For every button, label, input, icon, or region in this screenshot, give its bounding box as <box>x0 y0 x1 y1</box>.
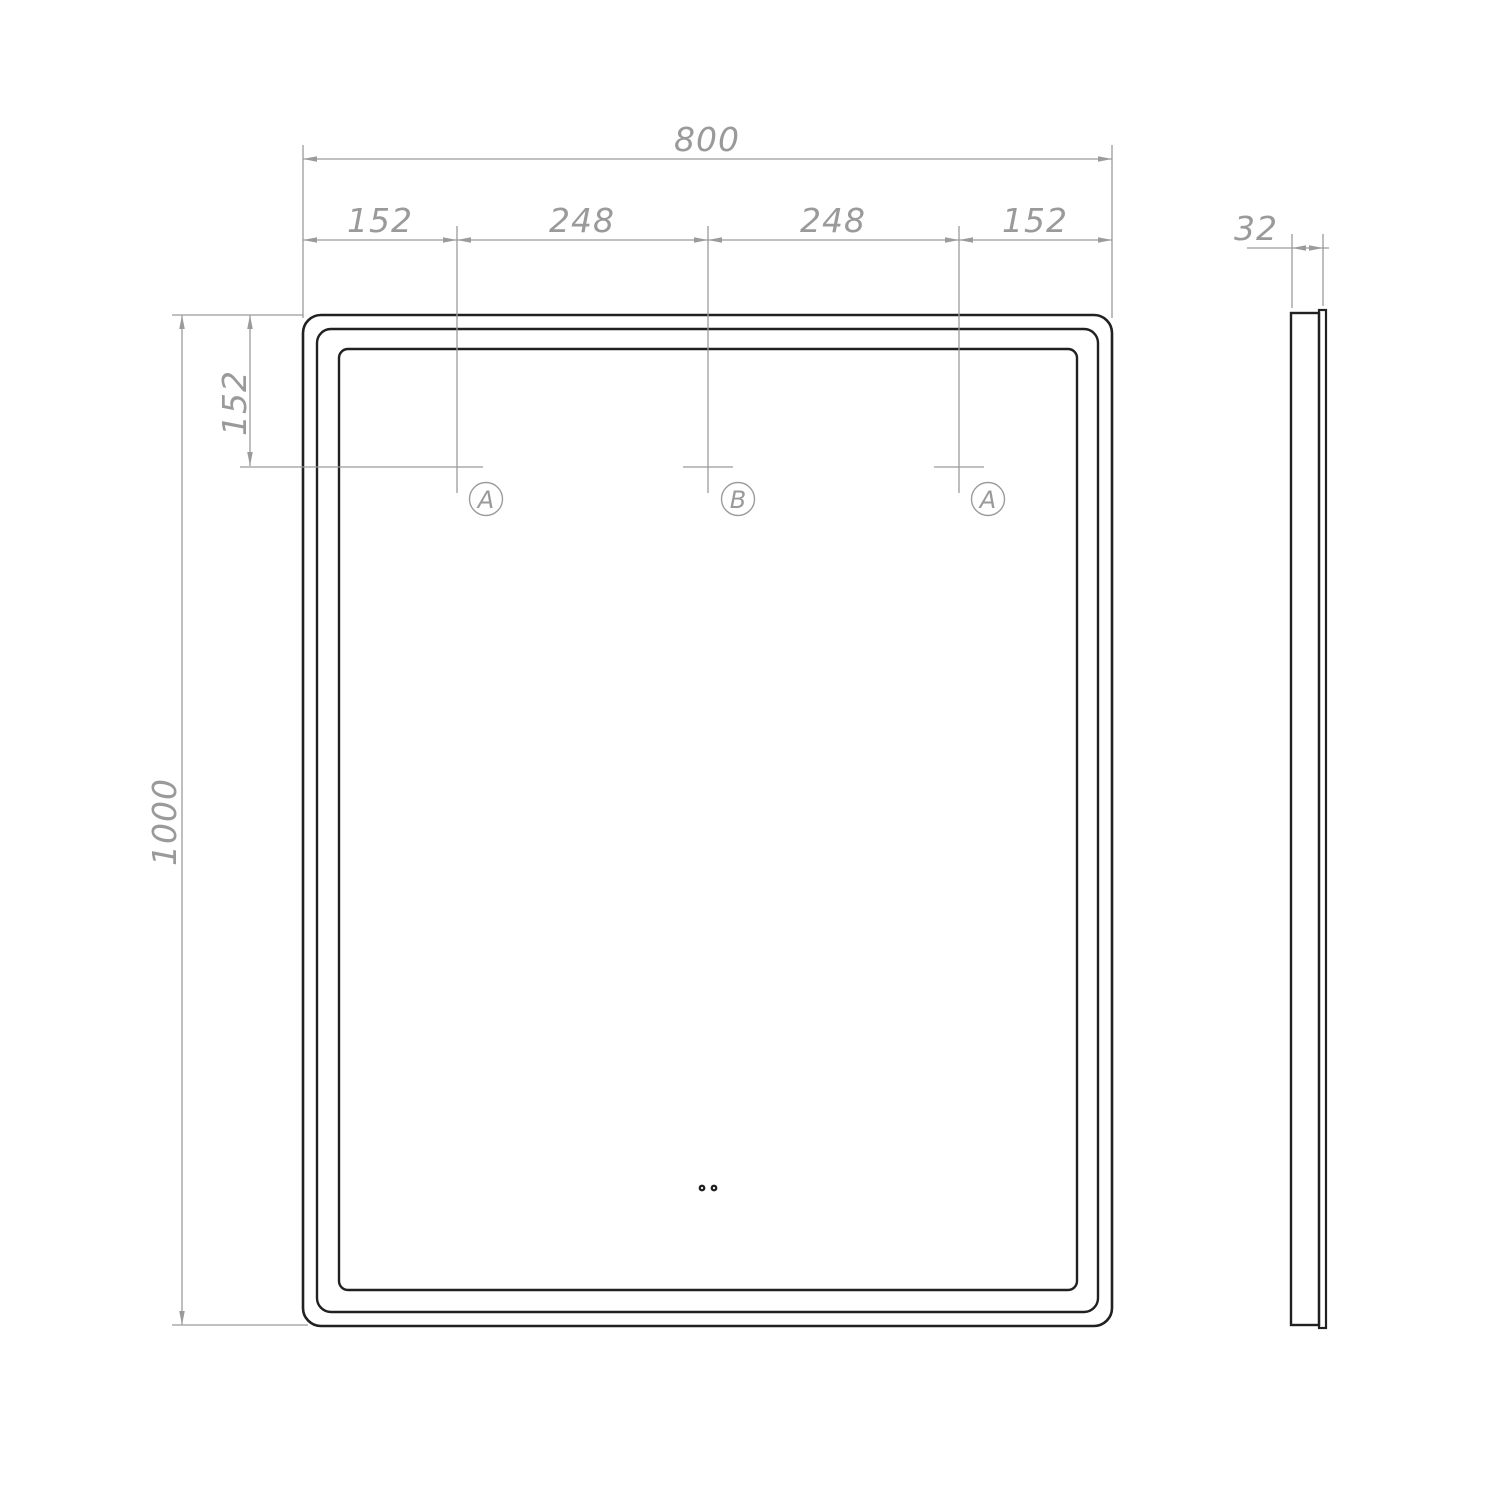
arrow-offset-top <box>247 315 253 329</box>
dim-segment-1-label: 152 <box>347 201 413 240</box>
mirror-technical-drawing: 800 152 248 248 152 1000 152 32 A B A <box>0 0 1500 1500</box>
touch-dot-left-center <box>701 1187 703 1189</box>
mount-point-a-left-label: A <box>476 486 494 514</box>
arrow-tick1-out <box>457 237 471 243</box>
arrow-tick3-out <box>959 237 973 243</box>
dimension-lines <box>172 145 1329 1325</box>
drawing-svg: 800 152 248 248 152 1000 152 32 A B A <box>0 0 1500 1500</box>
dim-mount-offset-label: 152 <box>215 370 254 436</box>
mount-point-badges: A B A <box>470 483 1005 516</box>
arrow-height-bottom <box>179 1311 185 1325</box>
arrow-thickness-left <box>1292 245 1306 251</box>
arrow-offset-bottom <box>247 452 253 466</box>
arrow-chain-right <box>1098 237 1112 243</box>
arrow-width-left <box>303 156 317 162</box>
arrow-tick3-in <box>945 237 959 243</box>
arrow-thickness-right <box>1309 245 1323 251</box>
arrow-chain-left <box>303 237 317 243</box>
dim-total-height-label: 1000 <box>145 778 184 866</box>
mount-point-b-label: B <box>730 486 746 514</box>
side-profile-glass <box>1319 310 1326 1328</box>
arrow-tick2-in <box>694 237 708 243</box>
arrow-width-right <box>1098 156 1112 162</box>
arrow-tick2-out <box>708 237 722 243</box>
touch-dot-right-center <box>713 1187 715 1189</box>
touch-sensor-dots <box>699 1185 718 1192</box>
side-view <box>1291 310 1326 1328</box>
side-profile-body <box>1291 313 1319 1325</box>
dim-segment-3-label: 248 <box>800 201 866 240</box>
dim-thickness-label: 32 <box>1234 209 1278 248</box>
dim-segment-2-label: 248 <box>549 201 615 240</box>
mount-point-a-right-label: A <box>978 486 996 514</box>
dimension-labels: 800 152 248 248 152 1000 152 32 <box>145 120 1278 866</box>
arrow-tick1-in <box>443 237 457 243</box>
dim-total-width-label: 800 <box>674 120 740 159</box>
arrow-height-top <box>179 315 185 329</box>
dim-segment-4-label: 152 <box>1002 201 1068 240</box>
